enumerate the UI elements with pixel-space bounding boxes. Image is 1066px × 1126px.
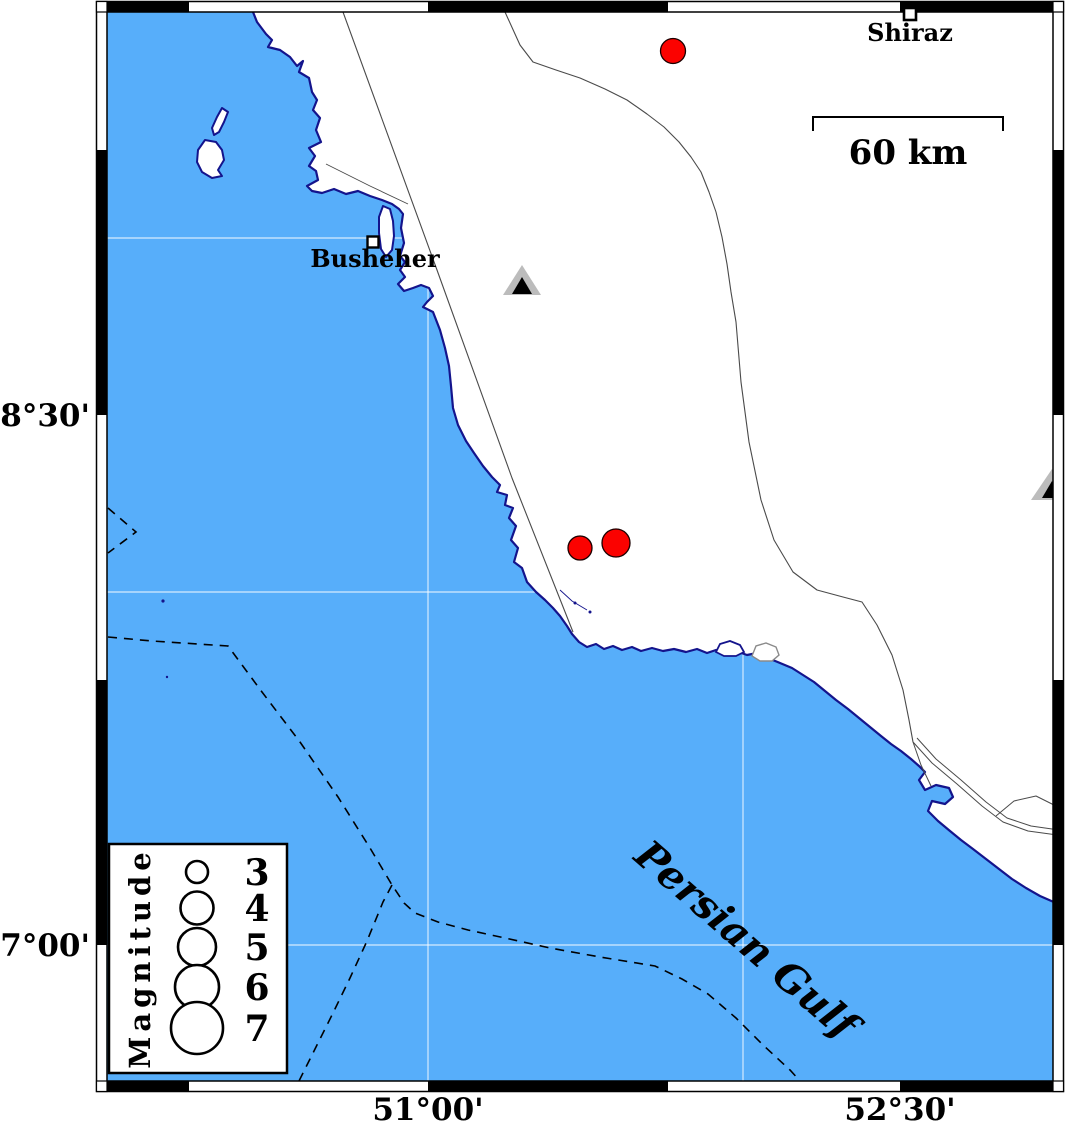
- map-canvas: Persian Gulf Busheher 60 km S: [0, 0, 1066, 1126]
- legend-magnitude-label: 5: [244, 927, 269, 969]
- earthquake-marker: [568, 536, 592, 560]
- city-label-shiraz: Shiraz: [867, 18, 953, 47]
- lat-tick-label: 27°00': [0, 928, 90, 964]
- magnitude-legend: Magnitude 3 4 5 6 7: [109, 844, 287, 1073]
- city-label-busheher: Busheher: [310, 244, 440, 273]
- legend-magnitude-label: 6: [244, 967, 269, 1009]
- lon-tick-label: 52°30': [844, 1092, 955, 1126]
- legend-values: 3 4 5 6 7: [244, 852, 269, 1050]
- earthquake-marker: [661, 39, 686, 64]
- legend-magnitude-label: 7: [244, 1008, 269, 1050]
- earthquake-marker: [602, 529, 630, 557]
- legend-title: Magnitude: [123, 847, 157, 1068]
- lon-tick-label: 51°00': [372, 1092, 483, 1126]
- scale-bar-label: 60 km: [849, 133, 968, 173]
- legend-magnitude-label: 4: [244, 888, 269, 930]
- lat-tick-label: 28°30': [0, 398, 90, 434]
- seismicity-map-page: Persian Gulf Busheher 60 km S: [0, 0, 1066, 1126]
